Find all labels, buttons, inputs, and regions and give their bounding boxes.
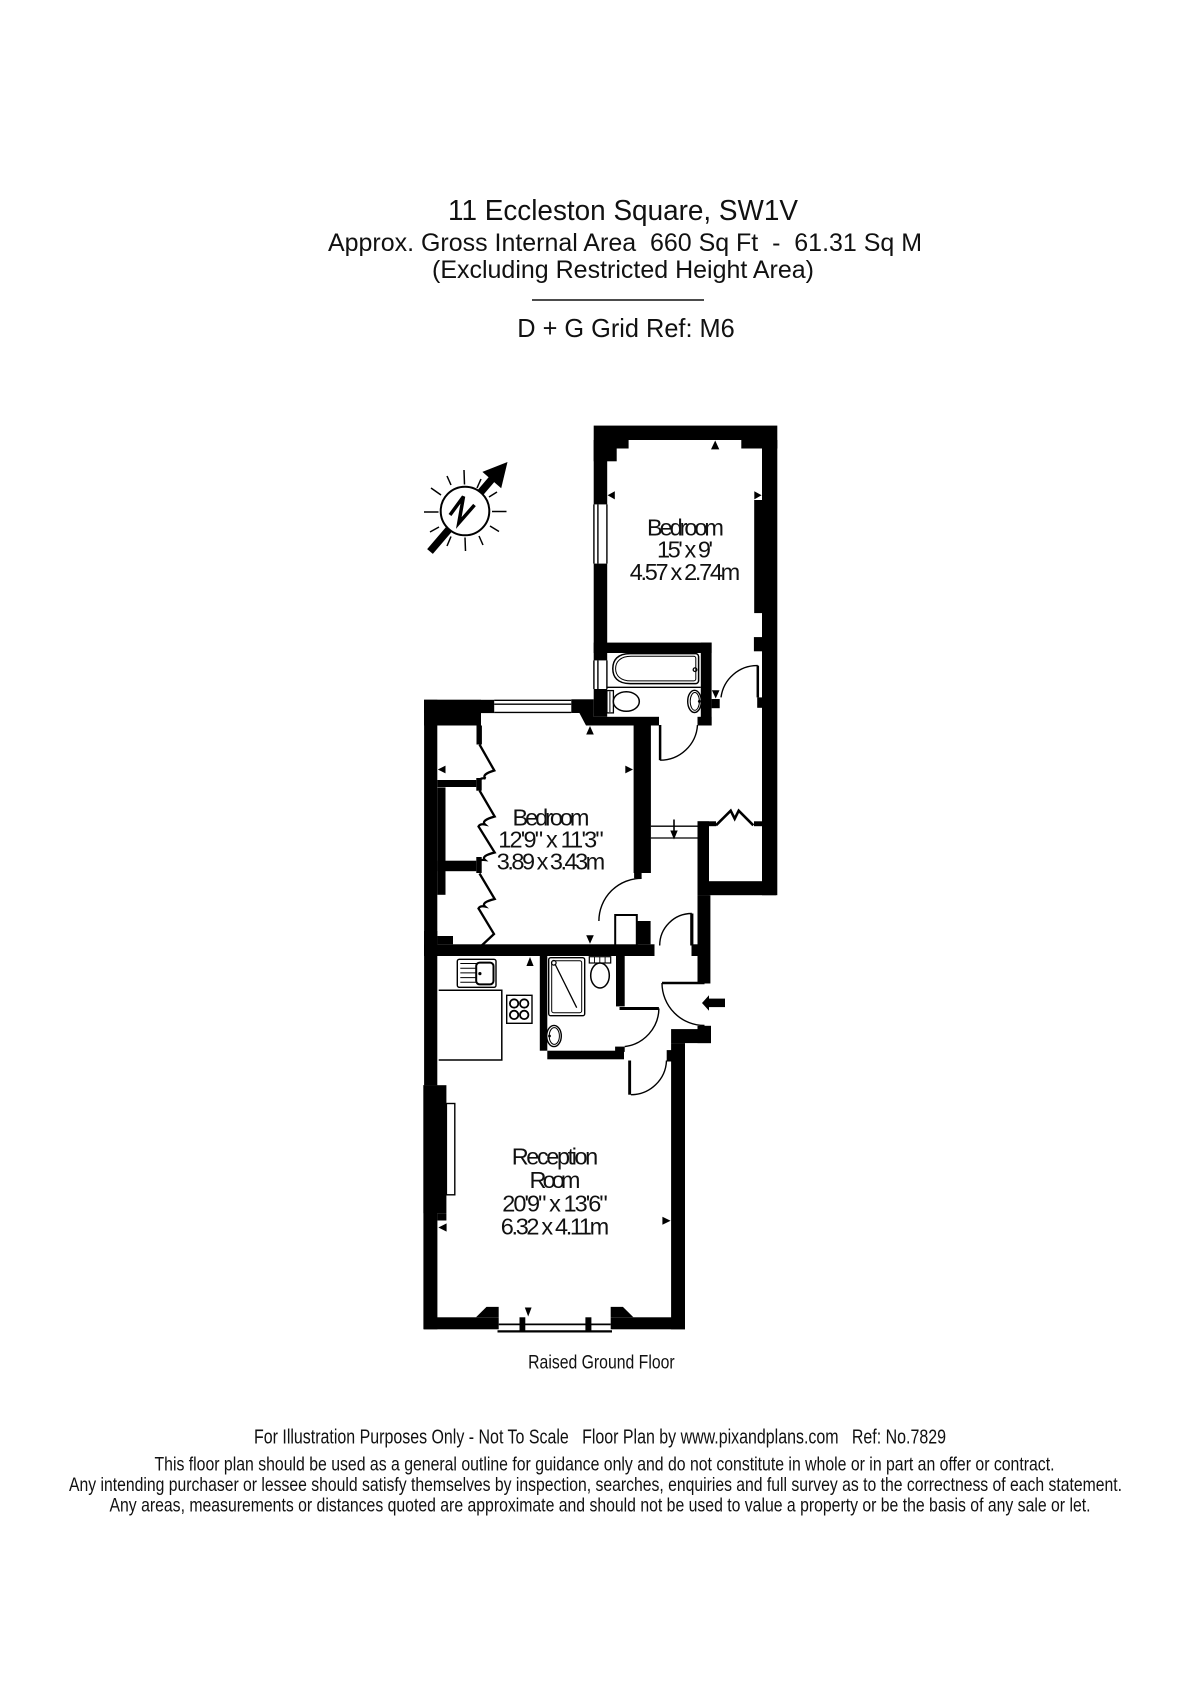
svg-text:Approx. Gross Internal Area 6: Approx. Gross Internal Area 660 Sq Ft - … bbox=[328, 229, 922, 257]
svg-text:Any intending purchaser or les: Any intending purchaser or lessee should… bbox=[69, 1474, 1122, 1496]
svg-text:3.89 x 3.43m: 3.89 x 3.43m bbox=[497, 849, 606, 875]
svg-text:This floor plan should be used: This floor plan should be used as a gene… bbox=[155, 1453, 1055, 1475]
svg-text:D + G Grid Ref: M6: D + G Grid Ref: M6 bbox=[517, 313, 735, 343]
svg-text:For Illustration Purposes Only: For Illustration Purposes Only - Not To … bbox=[254, 1426, 946, 1448]
svg-text:Raised Ground Floor: Raised Ground Floor bbox=[528, 1352, 675, 1374]
svg-text:4.57 x 2.74m: 4.57 x 2.74m bbox=[630, 559, 741, 585]
svg-text:6.32 x 4.11m: 6.32 x 4.11m bbox=[501, 1214, 610, 1240]
svg-text:11 Eccleston Square, SW1V: 11 Eccleston Square, SW1V bbox=[448, 195, 799, 227]
svg-text:20'9" x 13'6": 20'9" x 13'6" bbox=[502, 1190, 608, 1216]
svg-text:(Excluding Restricted Height A: (Excluding Restricted Height Area) bbox=[432, 256, 814, 284]
svg-text:Any areas, measurements or dis: Any areas, measurements or distances quo… bbox=[110, 1495, 1091, 1517]
svg-text:Reception: Reception bbox=[512, 1144, 599, 1170]
svg-text:Room: Room bbox=[530, 1167, 581, 1193]
